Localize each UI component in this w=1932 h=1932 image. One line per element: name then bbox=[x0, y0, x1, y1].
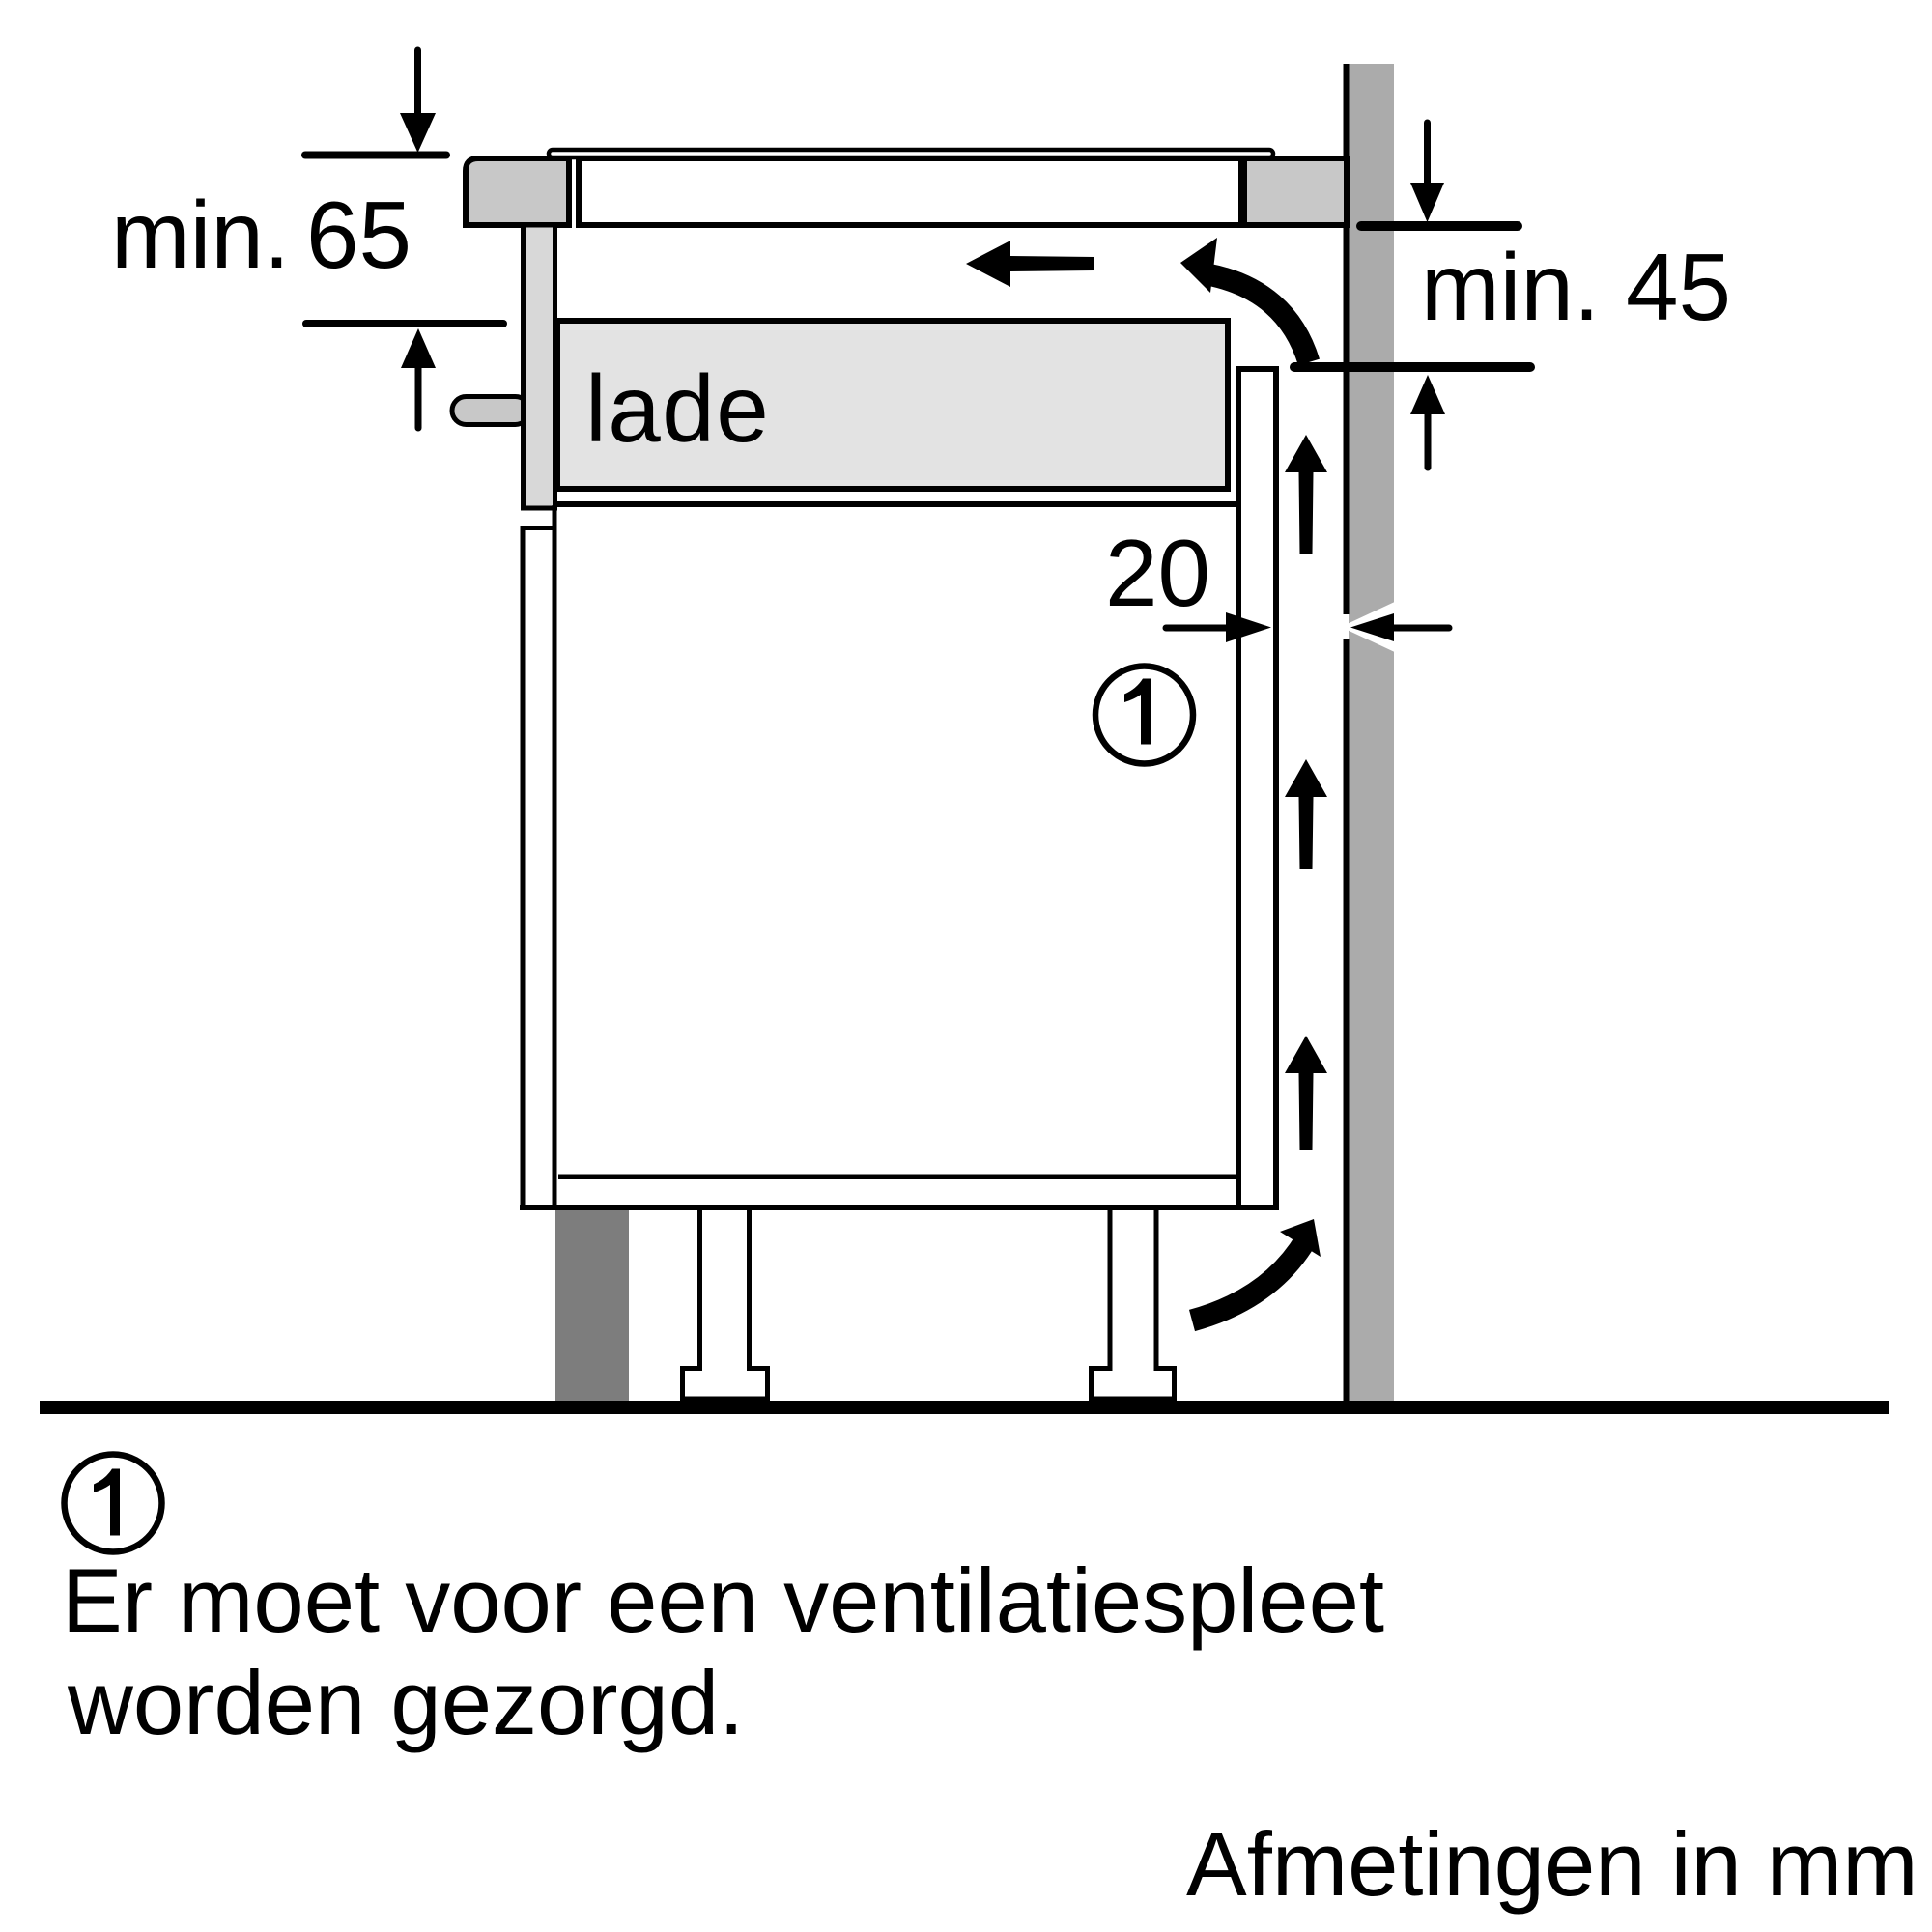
svg-text:20: 20 bbox=[1105, 520, 1210, 626]
svg-text:lade: lade bbox=[585, 355, 770, 462]
svg-text:worden gezorgd.: worden gezorgd. bbox=[67, 1652, 744, 1753]
svg-text:Er moet voor een ventilatiespl: Er moet voor een ventilatiespleet bbox=[62, 1549, 1384, 1651]
svg-text:45: 45 bbox=[1626, 234, 1731, 340]
svg-text:min.: min. bbox=[111, 182, 290, 288]
svg-text:min.: min. bbox=[1421, 234, 1600, 340]
svg-text:Afmetingen in mm: Afmetingen in mm bbox=[1186, 1813, 1918, 1915]
svg-text:65: 65 bbox=[306, 182, 412, 288]
